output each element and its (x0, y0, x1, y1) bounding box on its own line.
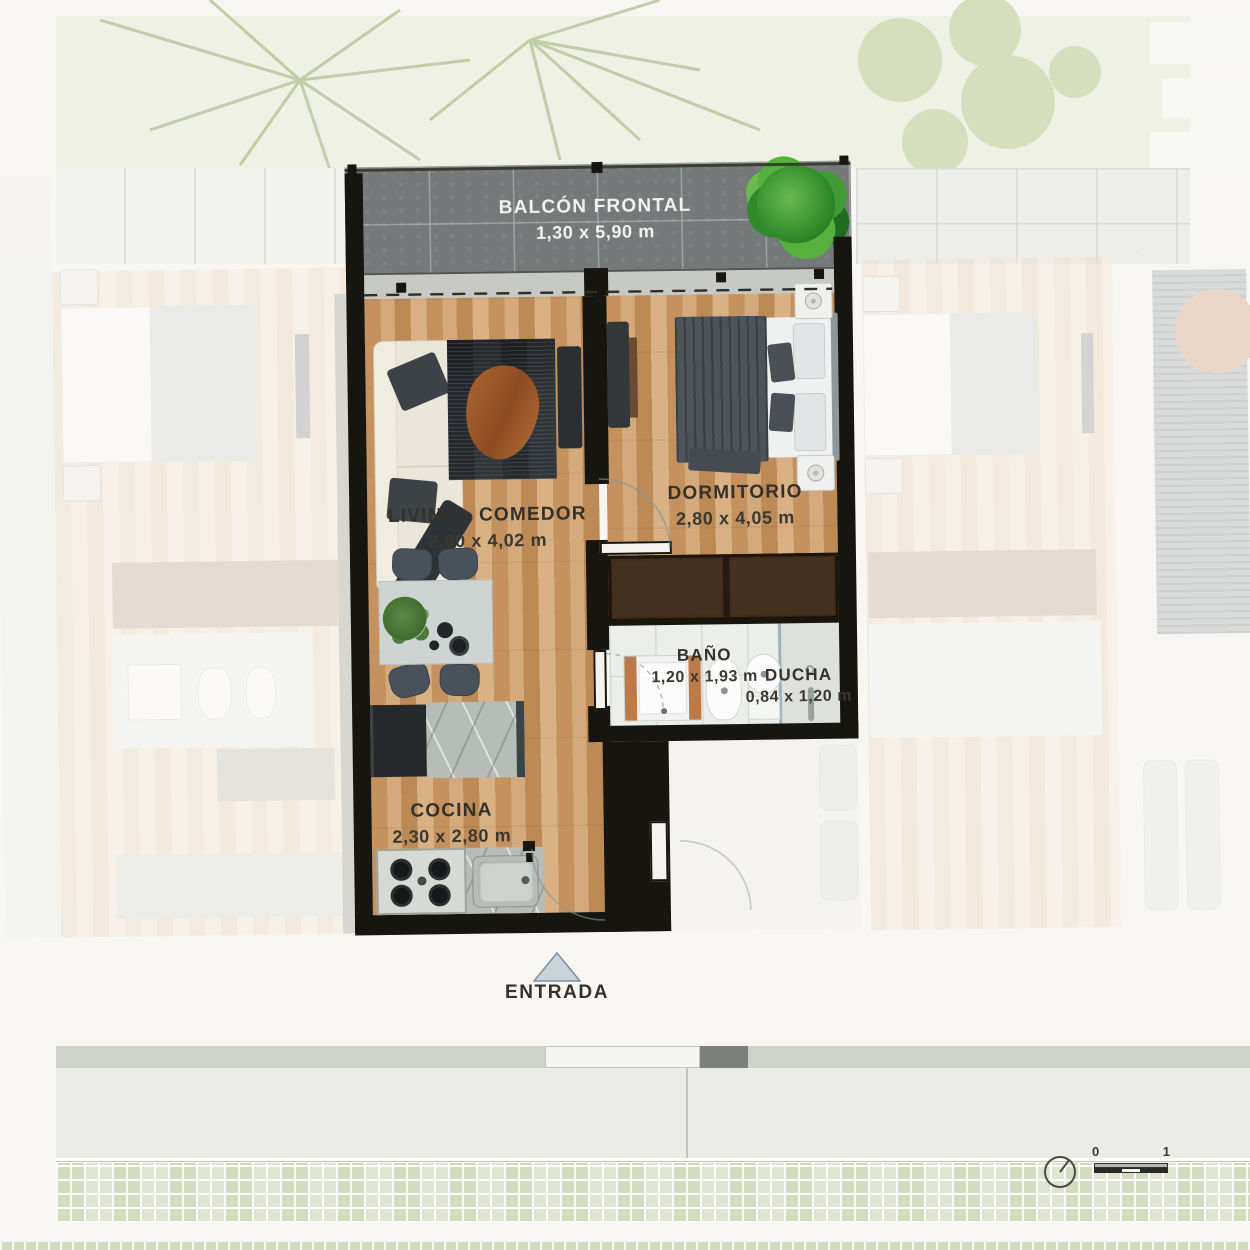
bathroom-dims: 1,20 x 1,93 m (651, 668, 758, 687)
living-dims: 2,80 x 4,02 m (428, 530, 547, 553)
living-label: LIVING - COMEDOR (388, 503, 587, 528)
garden-grid-strip-bottom (0, 1242, 1250, 1250)
bathroom-label: BAÑO (677, 645, 732, 666)
scale-start-label: 0 (1092, 1144, 1099, 1159)
scale-bar-seg-dark (1140, 1168, 1168, 1173)
scale-bar: 0 1 (1094, 1144, 1168, 1176)
shower-dims: 0,84 x 1,20 m (746, 687, 853, 706)
scale-bar-seg-light (1122, 1168, 1140, 1173)
scale-end-label: 1 (1163, 1144, 1170, 1159)
north-compass-icon (1042, 1154, 1078, 1190)
bedroom-label: DORMITORIO (667, 481, 802, 505)
kitchen-dims: 2,30 x 2,80 m (392, 825, 511, 848)
corridor-door-dark (700, 1046, 748, 1068)
floor-plan-page: BALCÓN FRONTAL 1,30 x 5,90 m (0, 0, 1250, 1250)
entrance-arrow-icon (531, 950, 583, 984)
corridor-floor (56, 1068, 1250, 1158)
kitchen-label: COCINA (410, 800, 492, 823)
shower-label: DUCHA (765, 665, 833, 686)
corridor-divider-line (686, 1068, 688, 1158)
entrance-label: ENTRADA (505, 982, 609, 1004)
corridor-door-gap (545, 1046, 700, 1068)
scale-bar-seg-dark (1094, 1168, 1122, 1173)
bedroom-dims: 2,80 x 4,05 m (676, 507, 795, 530)
